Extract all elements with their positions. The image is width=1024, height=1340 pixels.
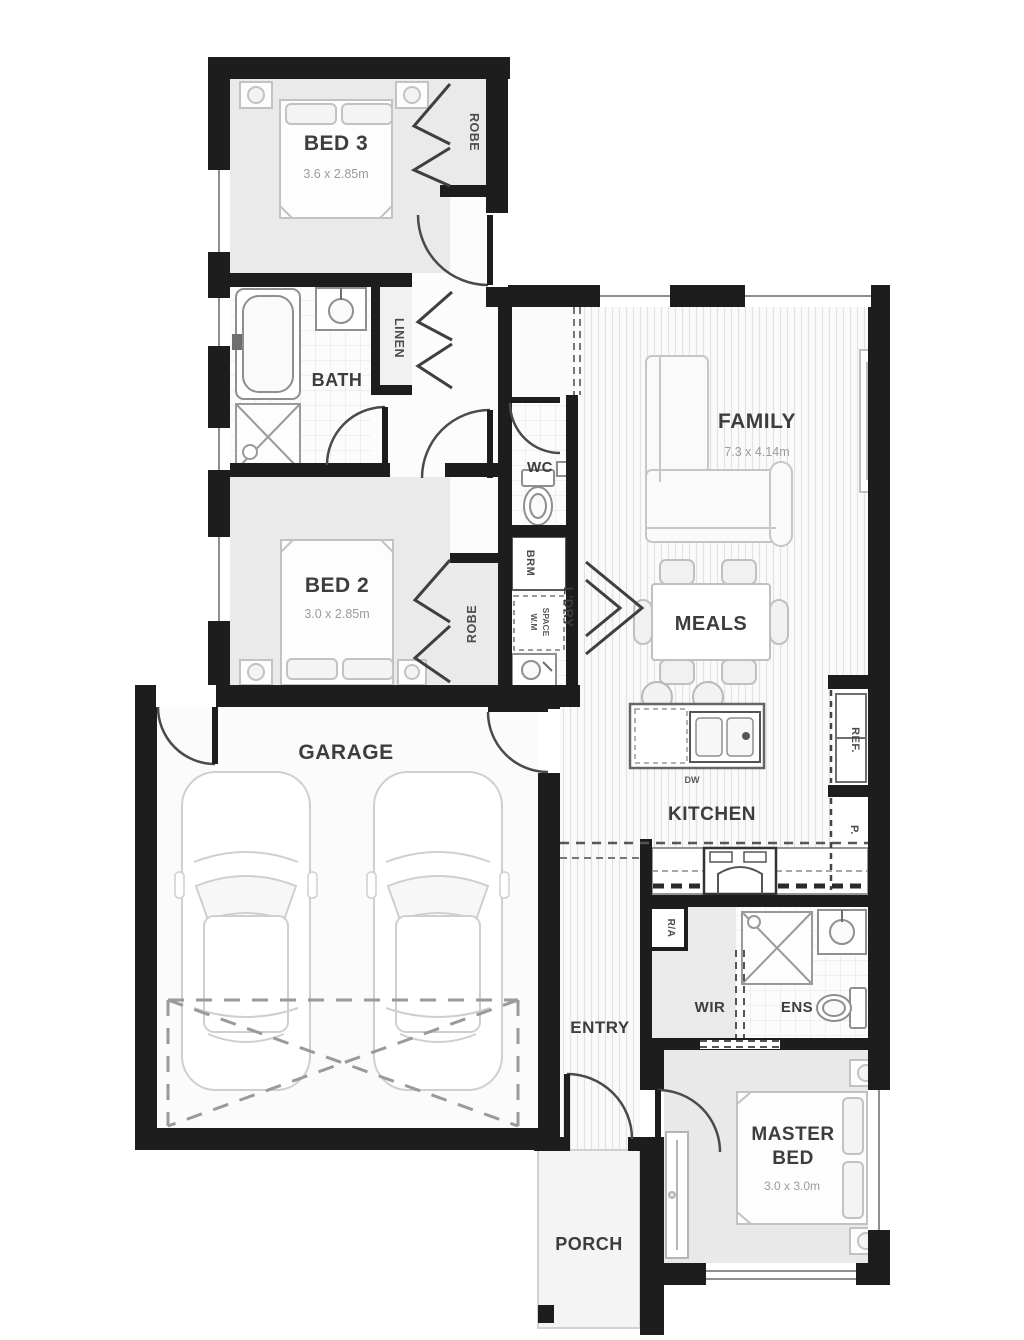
label-robe-bed3: ROBE <box>467 113 481 151</box>
label-pantry: P. <box>848 825 860 835</box>
label-dw: DW <box>685 775 700 785</box>
room-dims-family: 7.3 x 4.14m <box>724 445 789 459</box>
ens-basin-icon <box>818 910 866 954</box>
room-label-porch: PORCH <box>555 1234 623 1254</box>
car-icon <box>367 772 509 1090</box>
basin-icon <box>316 288 366 330</box>
room-label-bed3: BED 3 <box>304 132 368 155</box>
window <box>208 298 230 346</box>
broom-cupboard-icon <box>512 537 566 590</box>
car-icon <box>175 772 317 1090</box>
window <box>208 428 230 470</box>
room-label-bed2: BED 2 <box>305 574 369 597</box>
label-wm-line1: W.M <box>529 614 539 631</box>
bathtub-icon <box>232 289 300 399</box>
shower-icon <box>236 404 300 470</box>
room-dims-bed3: 3.6 x 2.85m <box>303 167 368 181</box>
room-dims-master: 3.0 x 3.0m <box>764 1179 820 1193</box>
room-label-master-line2: BED <box>772 1148 814 1169</box>
ens-shower-icon <box>742 912 812 984</box>
window <box>600 285 670 307</box>
room-label-wir: WIR <box>695 999 726 1016</box>
floor-plan-page: BED 3 3.6 x 2.85m ROBE LINEN BATH BED 2 … <box>0 0 1024 1335</box>
master-robe-panel <box>666 1132 688 1258</box>
room-label-ens: ENS <box>781 999 813 1016</box>
room-label-meals: MEALS <box>675 613 748 635</box>
window <box>208 170 230 252</box>
floor-plan: BED 3 3.6 x 2.85m ROBE LINEN BATH BED 2 … <box>0 0 1024 1335</box>
room-label-kitchen: KITCHEN <box>668 804 756 825</box>
room-label-wc: WC <box>527 459 553 476</box>
room-label-ldry: L'DRY <box>561 587 576 628</box>
label-wm-line2: SPACE <box>541 608 551 637</box>
room-dims-bed2: 3.0 x 2.85m <box>304 607 369 621</box>
room-label-entry: ENTRY <box>570 1018 630 1037</box>
label-brm: BRM <box>524 550 536 577</box>
window <box>208 537 230 621</box>
label-ref: REF. <box>849 727 861 753</box>
label-robe-bed2: ROBE <box>465 605 479 643</box>
room-label-family: FAMILY <box>718 410 796 433</box>
window <box>706 1263 856 1285</box>
window <box>868 1090 890 1230</box>
room-label-garage: GARAGE <box>298 741 393 764</box>
label-ra: R/A <box>665 919 676 938</box>
room-label-master-line1: MASTER <box>751 1124 834 1145</box>
window <box>745 285 871 307</box>
oven-icon <box>704 848 776 894</box>
label-linen: LINEN <box>392 318 406 358</box>
room-label-bath: BATH <box>312 370 363 390</box>
